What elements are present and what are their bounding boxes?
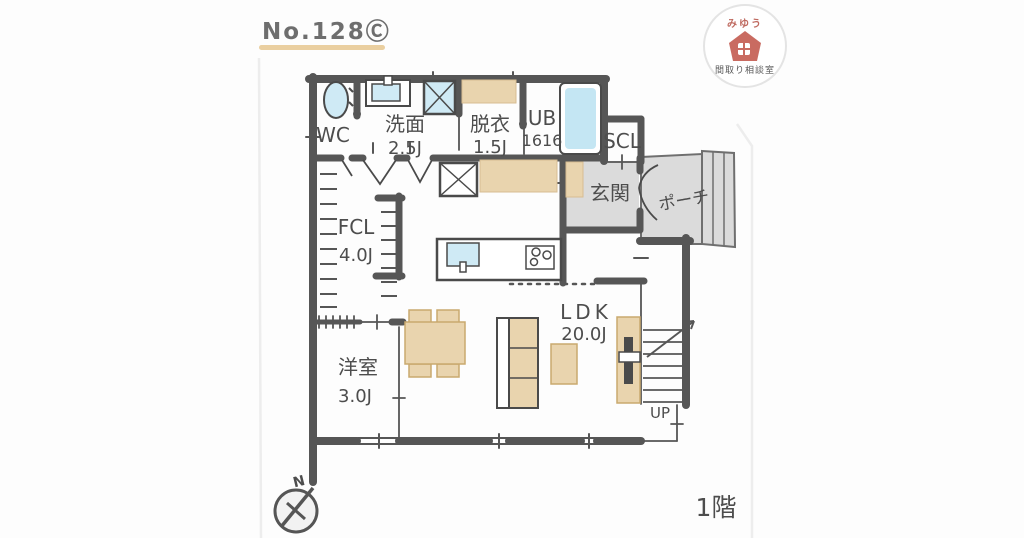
toilet [324,82,348,118]
label-entrance: 玄関 [590,181,630,205]
vanity-sink [372,84,400,101]
label-floor-number: 1階 [696,493,737,522]
kitchen-faucet [460,262,466,272]
label-family-closet: FCL [338,215,375,239]
washroom-door-right [408,160,432,182]
label-shoe-closet: SCL [603,129,642,153]
vanity-faucet [384,76,392,85]
sofa-seat [509,318,538,408]
label-dressing: 脱衣 [470,112,510,136]
fcl-hanger-ticks [320,174,397,307]
label-wc: WC [316,123,350,147]
wall-counter [480,160,557,192]
wc-door [342,160,352,176]
dressing-counter [462,80,516,103]
shoe-cabinet [566,162,583,197]
label-bath-size: 1616 [522,131,563,150]
floorplan-drawing: N WC 洗面 2.5J 脱衣 1.5J UB 1616 SCL 玄関 ポーチ … [0,0,1024,538]
dining-chair [437,364,459,377]
label-washroom-size: 2.5J [388,138,422,159]
label-western-room: 洋室 [338,355,378,379]
dining-chair [409,310,431,323]
label-bath: UB [528,106,556,130]
dining-table [405,322,465,364]
dining-chair [437,310,459,323]
floorplan-canvas: No.128Ⓒ みゆう 間取り相談室 [0,0,1024,538]
compass-north-label: N [291,473,306,491]
label-dressing-size: 1.5J [473,137,507,158]
label-family-closet-size: 4.0J [339,245,373,266]
label-western-room-size: 3.0J [338,386,372,407]
coffee-table [551,344,577,384]
label-washroom: 洗面 [385,112,425,136]
label-ldk-size: 20.0J [561,324,606,345]
label-ldk: LDK [560,300,612,324]
sofa-back [497,318,509,408]
dining-chair [409,364,431,377]
washroom-door-left [363,160,396,184]
label-stairs-up: UP [650,404,670,422]
